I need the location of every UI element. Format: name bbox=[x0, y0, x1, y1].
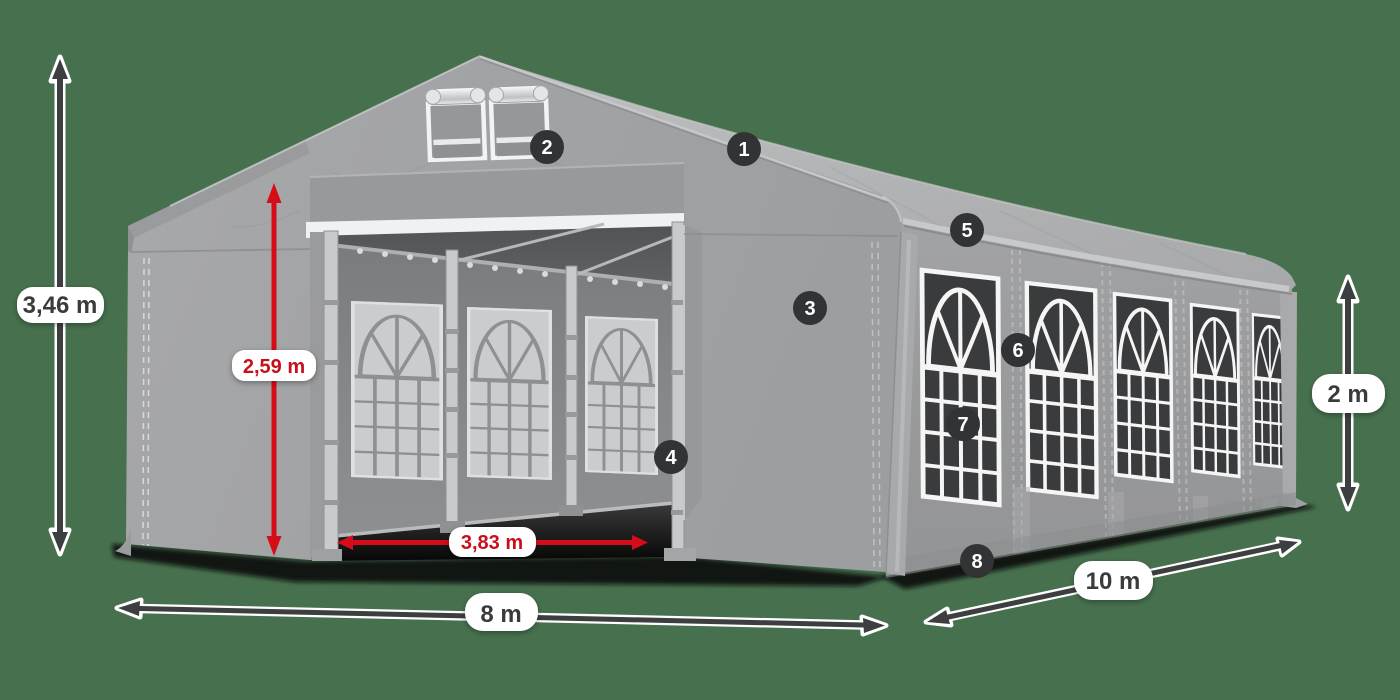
svg-text:3,46 m: 3,46 m bbox=[23, 292, 98, 319]
svg-text:2 m: 2 m bbox=[1327, 381, 1368, 408]
svg-text:3,83 m: 3,83 m bbox=[461, 532, 523, 554]
svg-text:5: 5 bbox=[961, 220, 972, 242]
svg-text:8 m: 8 m bbox=[480, 601, 521, 628]
svg-text:1: 1 bbox=[738, 139, 749, 161]
svg-text:2: 2 bbox=[541, 137, 552, 159]
svg-text:2,59 m: 2,59 m bbox=[243, 356, 305, 378]
svg-text:8: 8 bbox=[971, 551, 982, 573]
svg-text:10 m: 10 m bbox=[1086, 568, 1141, 595]
svg-text:6: 6 bbox=[1012, 340, 1023, 362]
svg-text:7: 7 bbox=[957, 414, 968, 436]
svg-text:3: 3 bbox=[804, 298, 815, 320]
svg-text:4: 4 bbox=[665, 447, 677, 469]
